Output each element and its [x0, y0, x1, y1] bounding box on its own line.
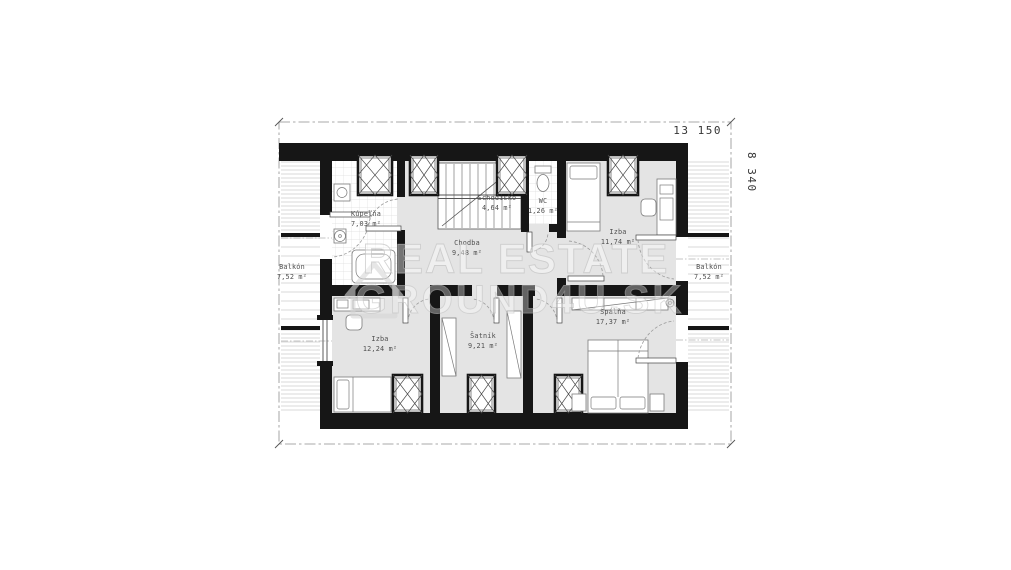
bed [567, 163, 600, 231]
nightstand [572, 394, 586, 411]
dimension-width-label: 13 150 [673, 124, 722, 137]
room-area-balkon-left: 7,52 m² [277, 273, 307, 281]
room-label-wc: WC [539, 197, 548, 205]
room-area-satnik: 9,21 m² [468, 342, 498, 350]
dimension-height-label: 8 340 [745, 152, 758, 193]
chair [641, 199, 656, 216]
room-label-balkon-left: Balkón [279, 263, 305, 271]
room-label-balkon-right: Balkón [696, 263, 722, 271]
roof-window [497, 155, 527, 195]
room-area-wc: 1,26 m² [528, 207, 558, 215]
room-area-balkon-right: 7,52 m² [694, 273, 724, 281]
bed [334, 377, 391, 412]
roof-window [468, 375, 495, 413]
roof-window [410, 155, 438, 195]
room-label-schodisko: Schodisko [478, 194, 517, 202]
room-label-satnik: Šatník [470, 331, 496, 340]
roof-window [393, 375, 422, 413]
room-area-schodisko: 4,64 m² [482, 204, 512, 212]
roof-window [608, 155, 638, 195]
floor-plan-canvas: 13 150 8 340 [0, 0, 1011, 570]
room-label-kupelna: Kúpeľňa [351, 210, 381, 218]
balcony-right [688, 233, 729, 330]
watermark-line2: GROUND4U.SK [356, 278, 685, 322]
watermark-line1: REAL ESTATE [363, 235, 670, 282]
room-area-izba-2: 12,24 m² [363, 345, 397, 353]
roof-window [358, 155, 392, 195]
floor-plan: 13 150 8 340 [0, 0, 1011, 570]
double-bed [588, 340, 648, 413]
watermark: REAL ESTATE GROUND4U.SK [347, 235, 684, 322]
desk [657, 179, 676, 235]
washing-machine [334, 184, 350, 201]
room-label-izba-2: Izba [371, 335, 388, 343]
nightstand [650, 394, 664, 411]
balcony-left [281, 233, 320, 330]
room-area-kupelna: 7,03 m² [351, 220, 381, 228]
washbasin [334, 229, 346, 243]
